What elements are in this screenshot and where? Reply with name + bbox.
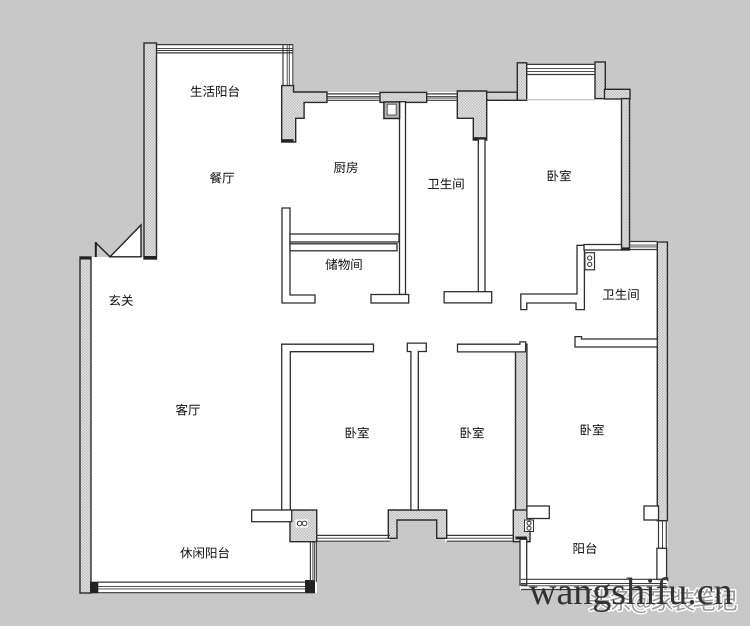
- svg-text:wangshifu.cn: wangshifu.cn: [529, 571, 733, 613]
